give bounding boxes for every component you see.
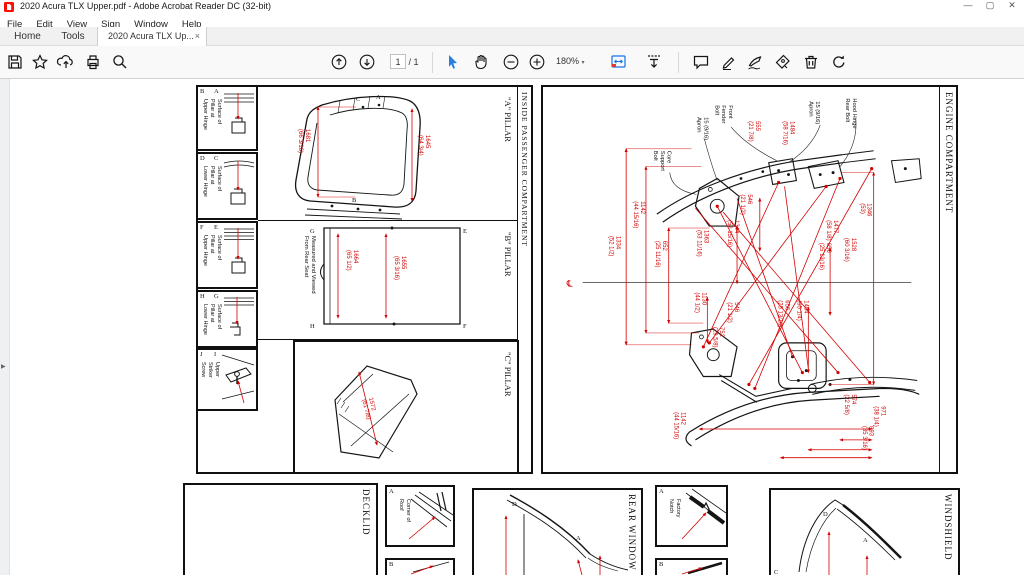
- rotate-icon[interactable]: [830, 53, 848, 71]
- svg-text:F: F: [463, 323, 467, 330]
- svg-text:(35 3/16): (35 3/16): [861, 426, 867, 450]
- svg-text:Bolt: Bolt: [652, 151, 658, 161]
- svg-text:1655: 1655: [400, 256, 406, 270]
- svg-text:A: A: [376, 94, 381, 101]
- svg-text:(66 3/16): (66 3/16): [297, 129, 303, 153]
- svg-text:971: 971: [880, 406, 886, 417]
- svg-text:(25 13/16): (25 13/16): [818, 243, 824, 270]
- tab-bar: Home Tools 2020 Acura TLX Up... ×: [0, 27, 1024, 46]
- sign-icon[interactable]: [746, 53, 764, 71]
- svg-text:(64 3/4): (64 3/4): [417, 135, 423, 156]
- svg-text:C: C: [774, 569, 778, 575]
- passenger-section-title: INSIDE PASSENGER COMPARTMENT: [520, 92, 529, 247]
- callout-sketch: [680, 560, 726, 574]
- previous-page-icon[interactable]: [330, 53, 348, 71]
- svg-text:1344: 1344: [733, 220, 739, 234]
- engine-diagram: ℄: [543, 87, 939, 472]
- zoom-level-select[interactable]: 180% ▾: [556, 56, 585, 66]
- zoom-caret-icon: ▾: [582, 60, 585, 66]
- tab-home[interactable]: Home: [0, 27, 55, 46]
- page-divider: /: [409, 57, 412, 67]
- pdf-page-canvas[interactable]: INSIDE PASSENGER COMPARTMENT B A Surface…: [10, 79, 1024, 575]
- svg-text:1484: 1484: [789, 121, 795, 135]
- callout-label: Surface ofPillar atUpper Hinge: [200, 235, 222, 283]
- callout-roof-b: B: [385, 558, 455, 575]
- svg-text:D: D: [823, 511, 828, 518]
- decklid-title: DECKLID: [361, 489, 371, 536]
- engine-section-title: ENGINE COMPARTMENT: [944, 92, 954, 213]
- hand-tool-icon[interactable]: [472, 53, 490, 71]
- c-pillar-diagram: 1572 (61 7/8): [297, 344, 515, 470]
- svg-text:D: D: [512, 501, 517, 508]
- point-letter: C: [214, 155, 218, 162]
- striker-sketch: [220, 351, 256, 409]
- point-letter: D: [200, 155, 205, 162]
- svg-text:546: 546: [733, 302, 739, 313]
- menu-bar: FileEditViewSignWindowHelp: [0, 14, 1024, 27]
- svg-text:656: 656: [784, 300, 790, 311]
- svg-text:15 (9/16): 15 (9/16): [814, 101, 820, 124]
- page-scrolling-icon[interactable]: [645, 53, 663, 71]
- pillar-divider: [258, 220, 517, 221]
- svg-text:Apron: Apron: [807, 101, 813, 116]
- trash-icon[interactable]: [802, 53, 820, 71]
- windshield-diagram: D A C: [773, 492, 953, 575]
- svg-text:(22 5/8): (22 5/8): [843, 394, 849, 414]
- svg-text:574: 574: [850, 394, 856, 405]
- b-pillar-diagram: Measured and Viewed From Rear Seat G E H…: [260, 222, 517, 339]
- svg-text:(44 15/16): (44 15/16): [673, 412, 679, 439]
- svg-text:A: A: [863, 537, 868, 544]
- factory-notch-sketch: [680, 487, 726, 545]
- centerline-symbol: ℄: [566, 278, 573, 288]
- svg-text:(55 1/4): (55 1/4): [795, 300, 801, 320]
- svg-text:(52 15/16): (52 15/16): [726, 220, 732, 247]
- dim-1655: 1655 (65 3/16): [393, 256, 406, 280]
- svg-text:E: E: [463, 228, 467, 235]
- callout-striker-ij: J I UpperStrikerScrew: [196, 348, 258, 411]
- label-apron-1: 15 (9/16)Apron: [695, 117, 708, 140]
- fit-width-icon[interactable]: [610, 53, 628, 71]
- svg-text:1681: 1681: [304, 129, 310, 143]
- svg-text:(65 1/2): (65 1/2): [345, 250, 351, 271]
- svg-text:1334: 1334: [614, 236, 620, 250]
- svg-text:(25 11/16): (25 11/16): [654, 241, 660, 268]
- windshield-panel: WINDSHIELD D A C: [769, 488, 960, 575]
- zoom-level-value: 180%: [556, 56, 579, 66]
- svg-text:G: G: [310, 228, 315, 235]
- svg-text:752: 752: [718, 327, 724, 337]
- svg-text:(38 1/4): (38 1/4): [873, 406, 879, 426]
- dim-1645: 1645 (64 3/4): [417, 135, 430, 156]
- svg-text:(21 7/8): (21 7/8): [747, 121, 753, 141]
- svg-text:1664: 1664: [352, 250, 358, 264]
- svg-text:B: B: [352, 197, 357, 204]
- label-core-support-bolt: CoreSupportBolt: [652, 151, 672, 171]
- dim-1572: 1572 (61 7/8): [360, 397, 378, 420]
- hinge-sketch: [222, 88, 256, 146]
- point-letter: B: [200, 88, 204, 95]
- toolbar-divider: [432, 52, 433, 73]
- stamp-icon[interactable]: [774, 53, 792, 71]
- point-letter: B: [659, 561, 663, 568]
- pdf-app-icon: [4, 2, 14, 12]
- zoom-in-icon[interactable]: [528, 53, 546, 71]
- callout-label: UpperStrikerScrew: [200, 362, 220, 408]
- svg-text:Front: Front: [727, 105, 733, 119]
- callout-lower-hinge-gh: H G Surface ofPillar atLower Hinge: [196, 290, 258, 348]
- a-pillar-diagram: C A B 1681 (66 3/16) 1645 (64 3/4): [260, 89, 517, 219]
- svg-text:Apron: Apron: [695, 117, 701, 132]
- point-letter: J: [200, 351, 203, 358]
- dim-1681: 1681 (66 3/16): [297, 129, 310, 153]
- point-letter: G: [214, 293, 219, 300]
- page-number-input[interactable]: 1: [390, 54, 406, 69]
- point-letter: B: [389, 561, 393, 568]
- callout-label: FactoryNotch: [665, 499, 681, 543]
- tab-document-label: 2020 Acura TLX Up...: [108, 27, 194, 46]
- svg-text:Fender: Fender: [720, 105, 726, 123]
- callout-label: Surface ofPillar atLower Hinge: [200, 304, 222, 346]
- comment-icon[interactable]: [692, 53, 710, 71]
- highlight-icon[interactable]: [720, 53, 738, 71]
- toolbar: 1 / 1 180% ▾: [0, 46, 1024, 79]
- svg-text:(52 1/2): (52 1/2): [607, 236, 613, 256]
- page-number-control: 1 / 1: [390, 54, 419, 70]
- acrobat-window: 2020 Acura TLX Upper.pdf - Adobe Acrobat…: [0, 0, 1024, 575]
- svg-text:652: 652: [661, 241, 667, 251]
- label-front-fender-bolt: FrontFenderBolt: [713, 105, 733, 123]
- svg-text:(60 3/16): (60 3/16): [843, 238, 849, 262]
- rear-window-diagram: D A: [476, 492, 636, 575]
- zoom-out-icon[interactable]: [502, 53, 520, 71]
- callout-label: Surface ofPillar atUpper Hinge: [200, 99, 222, 147]
- svg-text:(65 3/16): (65 3/16): [393, 256, 399, 280]
- callout-sketch: [409, 560, 453, 574]
- svg-text:Bolt: Bolt: [713, 105, 719, 115]
- save-icon[interactable]: [6, 53, 24, 71]
- callout-label: Surface ofPillar atLower Hinge: [200, 166, 222, 214]
- window-title: 2020 Acura TLX Upper.pdf - Adobe Acrobat…: [20, 1, 271, 11]
- svg-text:H: H: [310, 323, 315, 330]
- svg-text:15 (9/16): 15 (9/16): [702, 117, 708, 140]
- tab-tools[interactable]: Tools: [50, 27, 96, 46]
- svg-text:(21 1/2): (21 1/2): [739, 194, 745, 214]
- tab-document[interactable]: 2020 Acura TLX Up... ×: [97, 27, 207, 46]
- passenger-compartment-panel: INSIDE PASSENGER COMPARTMENT B A Surface…: [196, 85, 533, 474]
- svg-text:1363: 1363: [702, 230, 708, 244]
- svg-text:Rear Bolt: Rear Bolt: [844, 98, 850, 122]
- hinge-sketch: [222, 224, 256, 284]
- svg-text:Core: Core: [666, 151, 672, 163]
- point-letter: F: [200, 224, 204, 231]
- toolbar-divider: [678, 52, 679, 73]
- svg-text:1142: 1142: [680, 412, 686, 425]
- engine-compartment-panel: ENGINE COMPARTMENT ℄: [541, 85, 958, 474]
- svg-text:Measured and Viewed: Measured and Viewed: [310, 236, 316, 294]
- svg-text:A: A: [576, 535, 581, 542]
- svg-text:(53 11/16): (53 11/16): [695, 230, 701, 257]
- page-total: 1: [414, 57, 419, 67]
- svg-text:1528: 1528: [850, 238, 856, 252]
- tab-close-icon[interactable]: ×: [195, 27, 200, 46]
- label-hood-hinge: Hood HingeRear Bolt: [844, 98, 857, 128]
- maximize-button[interactable]: ▢: [980, 0, 1000, 11]
- svg-text:656: 656: [825, 243, 831, 254]
- roof-corner-sketch: [409, 487, 453, 545]
- callout-upper-hinge-ab: B A Surface ofPillar atUpper Hinge: [196, 85, 258, 151]
- star-icon[interactable]: [31, 53, 49, 71]
- close-button[interactable]: ✕: [1002, 0, 1022, 11]
- svg-text:(25 13/16): (25 13/16): [777, 300, 783, 327]
- svg-text:1130: 1130: [700, 292, 706, 305]
- svg-text:(21 1/2): (21 1/2): [726, 302, 732, 322]
- decklid-panel: DECKLID: [183, 483, 378, 575]
- share-cloud-icon[interactable]: [57, 53, 75, 71]
- callout-upper-hinge-ef: F E Surface ofPillar atUpper Hinge: [196, 221, 258, 289]
- hinge-sketch: [222, 293, 256, 345]
- expand-pane-icon[interactable]: ▶: [1, 363, 6, 370]
- svg-text:1142: 1142: [639, 201, 645, 214]
- point-letter: A: [659, 488, 664, 495]
- minimize-button[interactable]: —: [958, 0, 978, 10]
- nav-pane-collapsed: ▶: [0, 79, 10, 575]
- point-letter: I: [214, 351, 216, 358]
- svg-text:1346: 1346: [866, 203, 872, 217]
- search-icon[interactable]: [111, 53, 129, 71]
- panel-divider: [939, 87, 940, 472]
- point-letter: A: [389, 488, 394, 495]
- svg-text:(58 1/8): (58 1/8): [825, 220, 831, 240]
- point-letter: H: [200, 293, 205, 300]
- point-letter: A: [214, 88, 219, 95]
- point-letter: E: [214, 224, 218, 231]
- hinge-sketch: [222, 155, 256, 215]
- callout-corner-of-roof: A Corner ofRoof: [385, 485, 455, 547]
- svg-text:Support: Support: [659, 151, 665, 171]
- svg-text:(53): (53): [859, 203, 865, 214]
- label-apron-2: 15 (9/16)Apron: [807, 101, 820, 124]
- svg-text:555: 555: [754, 121, 760, 132]
- callout-factory-notch: A FactoryNotch: [655, 485, 728, 547]
- dim-1664: 1664 (65 1/2): [345, 250, 358, 271]
- select-tool-icon[interactable]: [444, 53, 462, 71]
- svg-text:(29 5/8): (29 5/8): [711, 327, 717, 347]
- callout-notch-b: B: [655, 558, 728, 575]
- svg-text:893: 893: [868, 426, 874, 437]
- title-bar: 2020 Acura TLX Upper.pdf - Adobe Acrobat…: [0, 0, 1024, 14]
- svg-text:(58 7/16): (58 7/16): [782, 121, 788, 145]
- next-page-icon[interactable]: [358, 53, 376, 71]
- b-pillar-note: Measured and Viewed From Rear Seat: [303, 236, 316, 294]
- svg-text:546: 546: [746, 194, 752, 205]
- print-icon[interactable]: [84, 53, 102, 71]
- svg-text:(44 1/2): (44 1/2): [693, 292, 699, 312]
- svg-text:(44 15/16): (44 15/16): [632, 201, 638, 228]
- svg-text:C: C: [356, 96, 360, 103]
- svg-text:Hood Hinge: Hood Hinge: [851, 98, 857, 128]
- svg-text:1404: 1404: [802, 300, 808, 314]
- callout-lower-hinge-cd: D C Surface ofPillar atLower Hinge: [196, 152, 258, 220]
- svg-text:1645: 1645: [424, 135, 430, 149]
- svg-text:1477: 1477: [832, 220, 838, 233]
- svg-text:From Rear Seat: From Rear Seat: [303, 236, 309, 278]
- rear-window-panel: REAR WINDOW D A: [472, 488, 643, 575]
